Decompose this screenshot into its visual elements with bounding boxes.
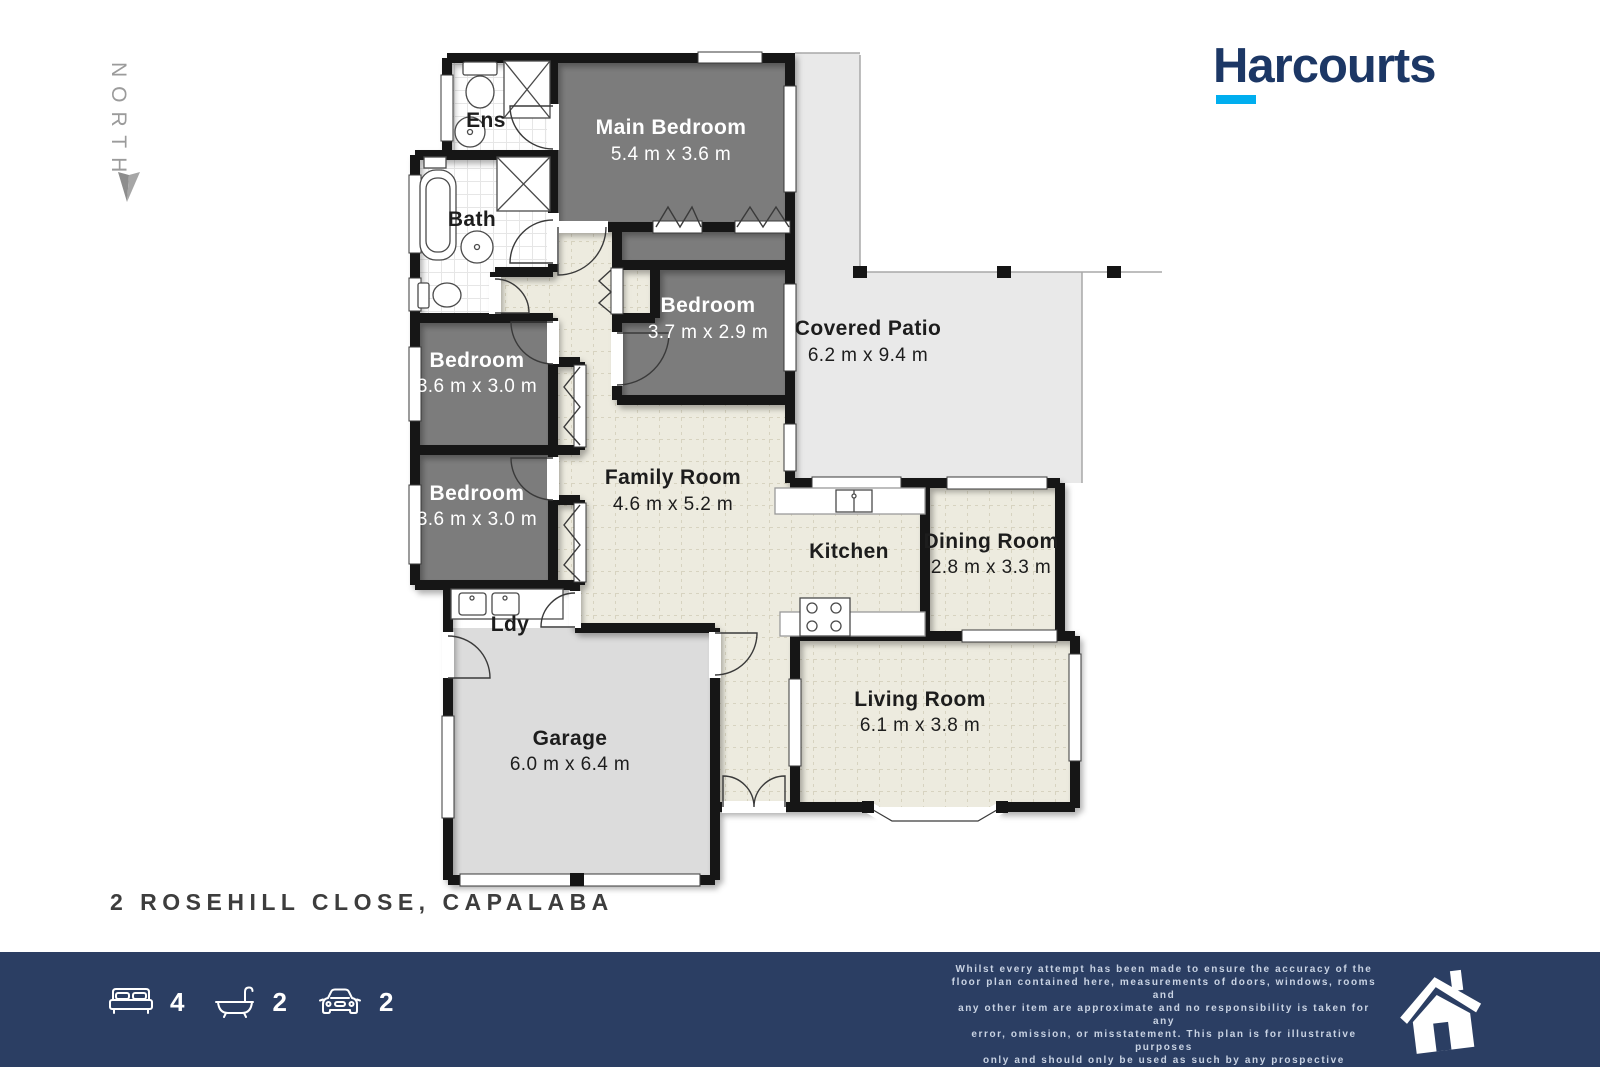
disclaimer-line: Whilst every attempt has been made to en… [950, 963, 1378, 976]
room-label-covered-patio: Covered Patio [795, 317, 941, 340]
room-dims-family-room: 4.6 m x 5.2 m [613, 494, 733, 515]
bath-count: 2 [272, 987, 286, 1018]
room-dims-bedroom3: 3.6 m x 3.0 m [417, 376, 537, 397]
room-dims-dining-room: 2.8 m x 3.3 m [931, 557, 1051, 578]
bed-count: 4 [170, 987, 184, 1018]
room-label-ldy: Ldy [491, 613, 530, 636]
disclaimer-line: floor plan contained here, measurements … [950, 976, 1378, 1002]
stove-icon [800, 598, 850, 636]
room-dims-living-room: 6.1 m x 3.8 m [860, 715, 980, 736]
property-stats: 4 2 2 [108, 984, 423, 1020]
car-count: 2 [379, 987, 393, 1018]
room-label-bedroom3: Bedroom [430, 349, 525, 372]
room-label-bedroom4: Bedroom [430, 482, 525, 505]
car-icon [317, 986, 363, 1018]
room-dims-garage: 6.0 m x 6.4 m [510, 754, 630, 775]
room-label-main-bedroom: Main Bedroom [596, 116, 747, 139]
bed-icon [108, 986, 154, 1018]
room-label-family-room: Family Room [605, 466, 741, 489]
room-label-bedroom2: Bedroom [661, 294, 756, 317]
room-dims-main-bedroom: 5.4 m x 3.6 m [611, 144, 731, 165]
disclaimer-line: only and should only be used as such by … [950, 1054, 1378, 1067]
room-dims-covered-patio: 6.2 m x 9.4 m [808, 345, 928, 366]
toilet-icon [418, 283, 429, 308]
disclaimer-text: Whilst every attempt has been made to en… [950, 963, 1378, 1067]
footer-bar: 4 2 2 [0, 952, 1600, 1067]
room-label-garage: Garage [533, 727, 608, 750]
covered-patio-floor [795, 53, 1162, 483]
property-address: 2 ROSEHILL CLOSE, CAPALABA [110, 889, 614, 916]
room-label-living-room: Living Room [854, 688, 986, 711]
disclaimer-line: any other item are approximate and no re… [950, 1002, 1378, 1028]
room-label-kitchen: Kitchen [809, 540, 889, 563]
floor-plan-page: NORTH Harcourts [0, 0, 1600, 1067]
room-dims-bedroom2: 3.7 m x 2.9 m [648, 322, 768, 343]
bath-icon [214, 984, 256, 1020]
disclaimer-line: error, omission, or misstatement. This p… [950, 1028, 1378, 1054]
house-icon [1392, 956, 1492, 1061]
room-label-ens: Ens [466, 109, 506, 132]
room-dims-bedroom4: 3.6 m x 3.0 m [417, 509, 537, 530]
toilet-icon [463, 62, 497, 75]
room-label-bath: Bath [448, 208, 496, 231]
room-label-dining-room: Dining Room [923, 530, 1058, 553]
